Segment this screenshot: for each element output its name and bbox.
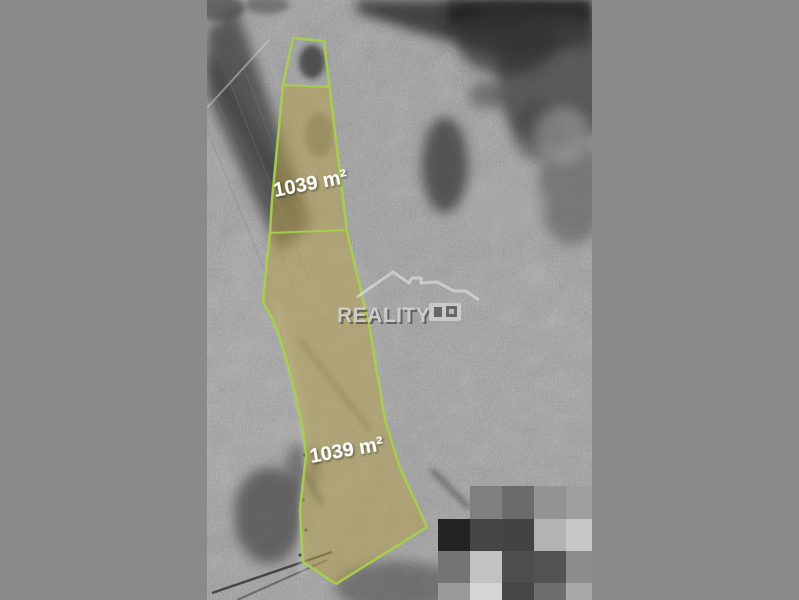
right-gray-bar bbox=[592, 0, 799, 600]
house-icon bbox=[429, 303, 461, 321]
aerial-photo: REALITY REALITY 1039 m² 1039 m² bbox=[207, 0, 592, 600]
left-gray-bar bbox=[0, 0, 207, 600]
reality-watermark-text: REALITY bbox=[337, 304, 430, 327]
